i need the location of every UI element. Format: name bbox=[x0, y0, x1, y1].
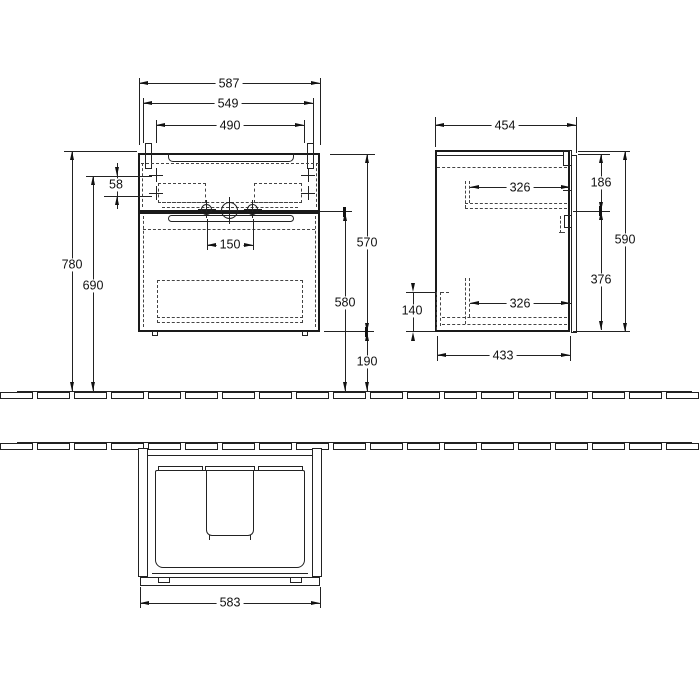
arrowhead bbox=[365, 332, 369, 341]
dim-side-overall-depth: 454 bbox=[492, 119, 519, 132]
hatch-segment bbox=[259, 392, 292, 399]
arrowhead bbox=[70, 151, 74, 160]
wall-line-hatch bbox=[0, 442, 700, 451]
side-wall-bracket-middle bbox=[564, 215, 572, 228]
dim-side-recess-height: 140 bbox=[399, 304, 426, 317]
plan-side-panel-right bbox=[312, 448, 322, 577]
front-drawer-hidden-bottom bbox=[157, 317, 303, 318]
extension-line bbox=[406, 331, 435, 332]
extension-line bbox=[573, 211, 610, 212]
hatch-segment bbox=[0, 443, 33, 450]
arrowhead bbox=[470, 301, 479, 305]
plan-bowl-tick-left bbox=[209, 535, 210, 540]
arrowhead bbox=[304, 101, 313, 105]
extension-line bbox=[330, 154, 375, 155]
dim-front-hole-width: 490 bbox=[217, 119, 244, 132]
extension-line bbox=[570, 336, 571, 361]
front-basin-hidden-edge-top bbox=[141, 163, 319, 164]
hatch-segment bbox=[37, 443, 70, 450]
dim-side-unit-height: 590 bbox=[612, 233, 639, 246]
hatch-segment bbox=[74, 392, 107, 399]
extension-line bbox=[578, 151, 630, 152]
dim-front-unit-height: 570 bbox=[354, 236, 381, 249]
arrowhead bbox=[156, 123, 165, 127]
extension-line bbox=[320, 78, 321, 145]
tap-hole-left-crosshair-h bbox=[198, 209, 216, 210]
dim-front-underside-height: 580 bbox=[332, 296, 359, 309]
arrowhead bbox=[567, 123, 576, 127]
extension-line bbox=[104, 196, 152, 197]
front-bottom-tab-left bbox=[152, 331, 158, 336]
side-cabinet-outline bbox=[435, 150, 570, 332]
side-bracket-hidden-foot bbox=[559, 232, 565, 233]
side-top-inner-edge bbox=[436, 155, 564, 156]
side-recess-hidden-v1 bbox=[436, 292, 437, 330]
front-cabinet-hidden-shelf bbox=[143, 229, 315, 230]
extension-line bbox=[435, 117, 436, 147]
dim-front-overall-width: 587 bbox=[216, 77, 243, 90]
arrowhead bbox=[343, 382, 347, 391]
hatch-segment bbox=[259, 443, 292, 450]
hatch-segment bbox=[370, 392, 403, 399]
extension-line bbox=[143, 98, 144, 143]
hatch-segment bbox=[555, 443, 588, 450]
hatch-segment bbox=[666, 443, 699, 450]
plan-bowl-tick-right bbox=[250, 535, 251, 540]
front-basin-tab-left bbox=[145, 143, 152, 169]
arrowhead bbox=[561, 185, 570, 189]
dim-side-upper-front: 186 bbox=[588, 176, 615, 189]
arrowhead bbox=[411, 283, 415, 292]
arrowhead bbox=[437, 353, 446, 357]
extension-line bbox=[207, 219, 208, 250]
arrowhead bbox=[115, 196, 119, 205]
hatch-segment bbox=[222, 443, 255, 450]
side-wall-rail bbox=[571, 155, 577, 333]
extension-line bbox=[253, 219, 254, 250]
extension-line bbox=[140, 587, 141, 608]
hatch-segment bbox=[74, 443, 107, 450]
arrowhead bbox=[115, 167, 119, 176]
mount-hole-cross-top-left bbox=[149, 168, 163, 182]
dim-front-height-mount: 690 bbox=[80, 279, 107, 292]
arrowhead bbox=[295, 123, 304, 127]
hatch-segment bbox=[407, 443, 440, 450]
arrowhead bbox=[143, 101, 152, 105]
front-basin-hidden-edge-right bbox=[316, 163, 317, 207]
hatch-segment bbox=[37, 392, 70, 399]
hatch-segment bbox=[444, 392, 477, 399]
dim-side-lower-section: 376 bbox=[588, 273, 615, 286]
floor-line bbox=[17, 391, 692, 392]
hatch-segment bbox=[629, 392, 662, 399]
arrowhead bbox=[311, 81, 320, 85]
hatch-segment bbox=[148, 392, 181, 399]
dim-side-body-depth: 433 bbox=[490, 349, 517, 362]
hatch-segment bbox=[481, 443, 514, 450]
front-handle-groove bbox=[168, 215, 294, 222]
plan-hinge-notch-right bbox=[290, 577, 302, 583]
tap-hole-right-crosshair-h bbox=[244, 209, 262, 210]
plan-front-panel-edge bbox=[152, 573, 308, 574]
side-lower-rail-hidden-h1 bbox=[442, 317, 567, 318]
extension-line bbox=[139, 78, 140, 145]
arrowhead bbox=[311, 601, 320, 605]
hatch-segment bbox=[629, 443, 662, 450]
arrowhead bbox=[561, 301, 570, 305]
hatch-segment bbox=[333, 392, 366, 399]
side-upper-rail-hidden-h2 bbox=[465, 208, 567, 209]
extension-line bbox=[320, 587, 321, 608]
side-bracket-hidden-edge bbox=[560, 216, 561, 233]
dim-tick bbox=[599, 206, 602, 216]
front-hidden-cutout-left bbox=[158, 183, 206, 203]
arrowhead bbox=[244, 243, 253, 247]
hatch-segment bbox=[555, 392, 588, 399]
side-hidden-top-edge bbox=[437, 167, 567, 168]
arrowhead bbox=[139, 81, 148, 85]
hatch-segment bbox=[518, 392, 551, 399]
mount-hole-cross-top-right bbox=[301, 168, 315, 182]
arrowhead bbox=[411, 332, 415, 341]
arrowhead bbox=[91, 176, 95, 185]
hatch-segment bbox=[518, 443, 551, 450]
front-cabinet-hidden-right bbox=[315, 216, 316, 327]
front-cabinet-hidden-left bbox=[143, 216, 144, 327]
hatch-segment bbox=[0, 392, 33, 399]
arrowhead bbox=[207, 243, 216, 247]
arrowhead bbox=[365, 382, 369, 391]
dim-front-hole-gap: 58 bbox=[106, 178, 126, 191]
side-upper-rail-hidden-h1 bbox=[465, 203, 567, 204]
front-basin-tab-right bbox=[307, 143, 314, 169]
plan-front-edge-segment-right bbox=[258, 466, 303, 471]
hatch-segment bbox=[481, 392, 514, 399]
front-bottom-tab-right bbox=[302, 331, 308, 336]
hatch-segment bbox=[370, 443, 403, 450]
dim-tick bbox=[343, 207, 346, 217]
extension-line bbox=[304, 120, 305, 143]
mount-hole-cross-bottom-left bbox=[149, 186, 163, 200]
arrowhead bbox=[561, 353, 570, 357]
hatch-segment bbox=[333, 443, 366, 450]
side-joint-mark-upper bbox=[563, 190, 571, 191]
extension-line bbox=[406, 292, 436, 293]
side-recess-hidden-top bbox=[441, 292, 449, 293]
technical-drawing-sheet: 587 549 490 780 690 58 570 580 190 bbox=[0, 0, 700, 700]
hatch-segment bbox=[592, 443, 625, 450]
dim-line-side-lower-section bbox=[601, 211, 602, 330]
hatch-segment bbox=[185, 443, 218, 450]
plan-back-edge bbox=[148, 455, 312, 456]
arrowhead bbox=[140, 601, 149, 605]
extension-line bbox=[156, 120, 157, 143]
extension-line bbox=[576, 117, 577, 153]
hatch-segment bbox=[407, 392, 440, 399]
arrowhead bbox=[599, 154, 603, 163]
hatch-segment bbox=[296, 392, 329, 399]
side-lower-rail-hidden-h2 bbox=[442, 324, 567, 325]
dim-front-floor-clearance: 190 bbox=[354, 355, 381, 368]
extension-line bbox=[578, 154, 610, 155]
dim-side-lower-rail: 326 bbox=[507, 297, 534, 310]
arrowhead bbox=[91, 382, 95, 391]
plan-hinge-notch-left bbox=[158, 577, 170, 583]
mount-hole-cross-bottom-right bbox=[301, 186, 315, 200]
dim-front-tap-spacing: 150 bbox=[217, 238, 244, 251]
extension-line bbox=[313, 98, 314, 143]
hatch-segment bbox=[444, 443, 477, 450]
plan-side-panel-left bbox=[138, 448, 148, 577]
plan-basin-bowl-outline bbox=[206, 470, 254, 536]
arrowhead bbox=[365, 154, 369, 163]
extension-line bbox=[437, 336, 438, 361]
arrowhead bbox=[623, 151, 627, 160]
arrowhead bbox=[599, 321, 603, 330]
dim-front-height-overall: 780 bbox=[59, 258, 86, 271]
front-basin-hidden-edge-left bbox=[142, 163, 143, 207]
dim-plan-overall-width: 583 bbox=[217, 596, 244, 609]
hatch-segment bbox=[666, 392, 699, 399]
wall-line bbox=[17, 442, 692, 443]
plan-front-edge-segment-left bbox=[158, 466, 203, 471]
front-hidden-cutout-right bbox=[254, 183, 302, 203]
floor-line-hatch bbox=[0, 391, 700, 400]
hatch-segment bbox=[592, 392, 625, 399]
arrowhead bbox=[435, 123, 444, 127]
extension-line bbox=[320, 211, 352, 212]
side-recess-hidden-v2 bbox=[440, 292, 441, 326]
extension-line bbox=[573, 331, 630, 332]
arrowhead bbox=[70, 382, 74, 391]
extension-line bbox=[64, 151, 137, 152]
hatch-segment bbox=[148, 443, 181, 450]
dim-front-mount-width: 549 bbox=[215, 97, 242, 110]
hatch-segment bbox=[185, 392, 218, 399]
dim-side-upper-rail: 326 bbox=[507, 181, 534, 194]
side-lower-rail-hidden-v2 bbox=[469, 278, 470, 317]
front-basin-top-groove bbox=[168, 153, 294, 162]
arrowhead bbox=[470, 185, 479, 189]
hatch-segment bbox=[111, 392, 144, 399]
hatch-segment bbox=[222, 392, 255, 399]
